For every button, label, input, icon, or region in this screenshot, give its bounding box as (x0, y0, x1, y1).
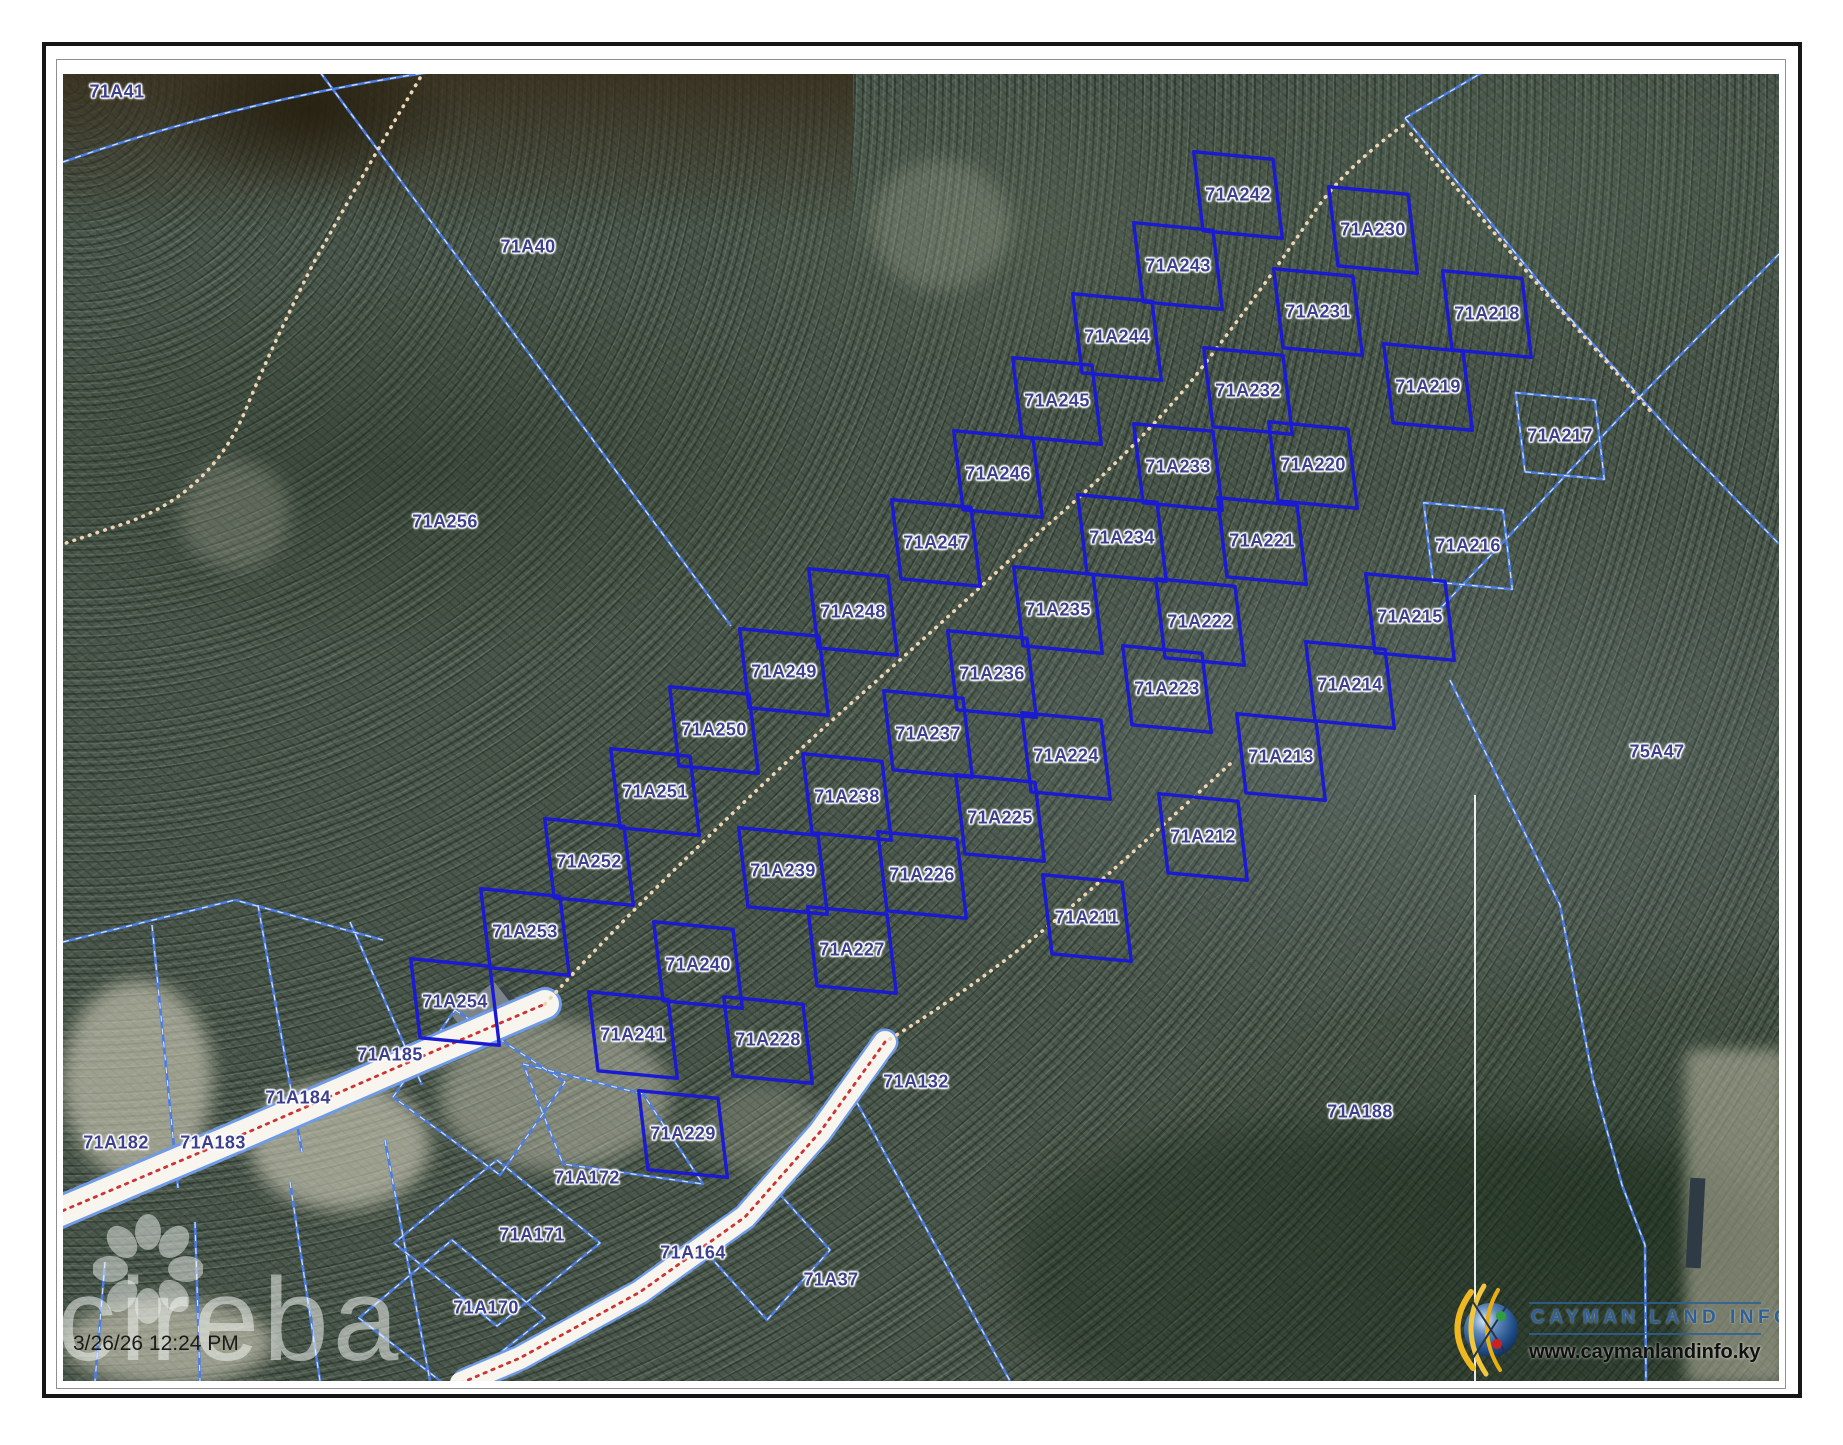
parcel-label-71A218: 71A218 (1454, 304, 1519, 325)
parcel-label-71A237: 71A237 (895, 724, 960, 745)
parcel-label-71A217: 71A217 (1527, 426, 1592, 447)
logo-rule-top (1529, 1302, 1761, 1304)
parcel-label-71A185: 71A185 (357, 1045, 422, 1066)
parcel-label-71A232: 71A232 (1215, 381, 1280, 402)
parcel-label-71A244: 71A244 (1084, 327, 1149, 348)
parcel-label-71A235: 71A235 (1025, 600, 1090, 621)
parcel-label-71A227: 71A227 (819, 940, 884, 961)
parcel-label-71A183: 71A183 (180, 1133, 245, 1154)
parcel-label-71A238: 71A238 (814, 787, 879, 808)
parcel-label-71A229: 71A229 (650, 1124, 715, 1145)
parcel-label-71A226: 71A226 (889, 865, 954, 886)
parcel-label-71A230: 71A230 (1340, 220, 1405, 241)
parcel-label-71A242: 71A242 (1205, 185, 1270, 206)
parcel-label-71A228: 71A228 (735, 1030, 800, 1051)
parcel-label-71A243: 71A243 (1145, 256, 1210, 277)
parcel-labels-layer: 71A24271A24371A24471A24571A24671A24771A2… (63, 74, 1779, 1381)
parcel-label-71A215: 71A215 (1377, 607, 1442, 628)
parcel-label-71A223: 71A223 (1134, 679, 1199, 700)
parcel-label-71A251: 71A251 (622, 782, 687, 803)
parcel-label-71A252: 71A252 (556, 852, 621, 873)
parcel-label-71A248: 71A248 (820, 602, 885, 623)
parcel-label-71A188: 71A188 (1327, 1102, 1392, 1123)
parcel-label-71A245: 71A245 (1024, 391, 1089, 412)
parcel-label-71A239: 71A239 (750, 861, 815, 882)
parcel-label-71A164: 71A164 (660, 1243, 725, 1264)
parcel-label-71A37: 71A37 (803, 1270, 858, 1291)
cireba-watermark: cireba (63, 1252, 402, 1381)
logo-rule-bottom (1529, 1333, 1761, 1335)
parcel-label-71A212: 71A212 (1170, 827, 1235, 848)
parcel-label-71A171: 71A171 (499, 1225, 564, 1246)
parcel-label-71A221: 71A221 (1229, 531, 1294, 552)
parcel-label-71A231: 71A231 (1285, 302, 1350, 323)
parcel-label-71A234: 71A234 (1089, 528, 1154, 549)
parcel-label-71A184: 71A184 (265, 1088, 330, 1109)
parcel-label-71A250: 71A250 (681, 720, 746, 741)
parcel-label-71A216: 71A216 (1435, 536, 1500, 557)
parcel-label-71A236: 71A236 (959, 664, 1024, 685)
cayman-land-info-logo: CAYMAN LAND INFO www.caymanlandinfo.ky (1451, 1288, 1763, 1380)
parcel-label-71A182: 71A182 (83, 1133, 148, 1154)
parcel-label-71A256: 71A256 (412, 512, 477, 533)
parcel-label-71A247: 71A247 (903, 533, 968, 554)
globe-icon (1451, 1282, 1525, 1378)
parcel-label-71A254: 71A254 (422, 992, 487, 1013)
parcel-label-71A170: 71A170 (453, 1298, 518, 1319)
parcel-label-71A219: 71A219 (1395, 377, 1460, 398)
parcel-label-71A213: 71A213 (1248, 747, 1313, 768)
parcel-label-71A233: 71A233 (1145, 457, 1210, 478)
parcel-label-71A224: 71A224 (1033, 746, 1098, 767)
aerial-map-canvas: 71A24271A24371A24471A24571A24671A24771A2… (63, 74, 1779, 1381)
logo-title: CAYMAN LAND INFO (1529, 1304, 1761, 1333)
parcel-label-71A240: 71A240 (665, 955, 730, 976)
parcel-label-71A241: 71A241 (600, 1025, 665, 1046)
parcel-label-71A246: 71A246 (965, 464, 1030, 485)
parcel-label-71A41: 71A41 (89, 82, 144, 103)
parcel-label-71A253: 71A253 (492, 922, 557, 943)
parcel-label-75A47: 75A47 (1629, 742, 1684, 763)
parcel-label-71A222: 71A222 (1167, 612, 1232, 633)
logo-url: www.caymanlandinfo.ky (1529, 1341, 1761, 1364)
parcel-label-71A132: 71A132 (883, 1072, 948, 1093)
parcel-label-71A172: 71A172 (554, 1168, 619, 1189)
parcel-label-71A220: 71A220 (1280, 455, 1345, 476)
parcel-label-71A211: 71A211 (1055, 908, 1119, 929)
parcel-label-71A225: 71A225 (967, 808, 1032, 829)
parcel-label-71A214: 71A214 (1317, 675, 1382, 696)
parcel-label-71A249: 71A249 (751, 662, 816, 683)
parcel-label-71A40: 71A40 (500, 237, 555, 258)
timestamp: 3/26/26 12:24 PM (73, 1332, 239, 1356)
